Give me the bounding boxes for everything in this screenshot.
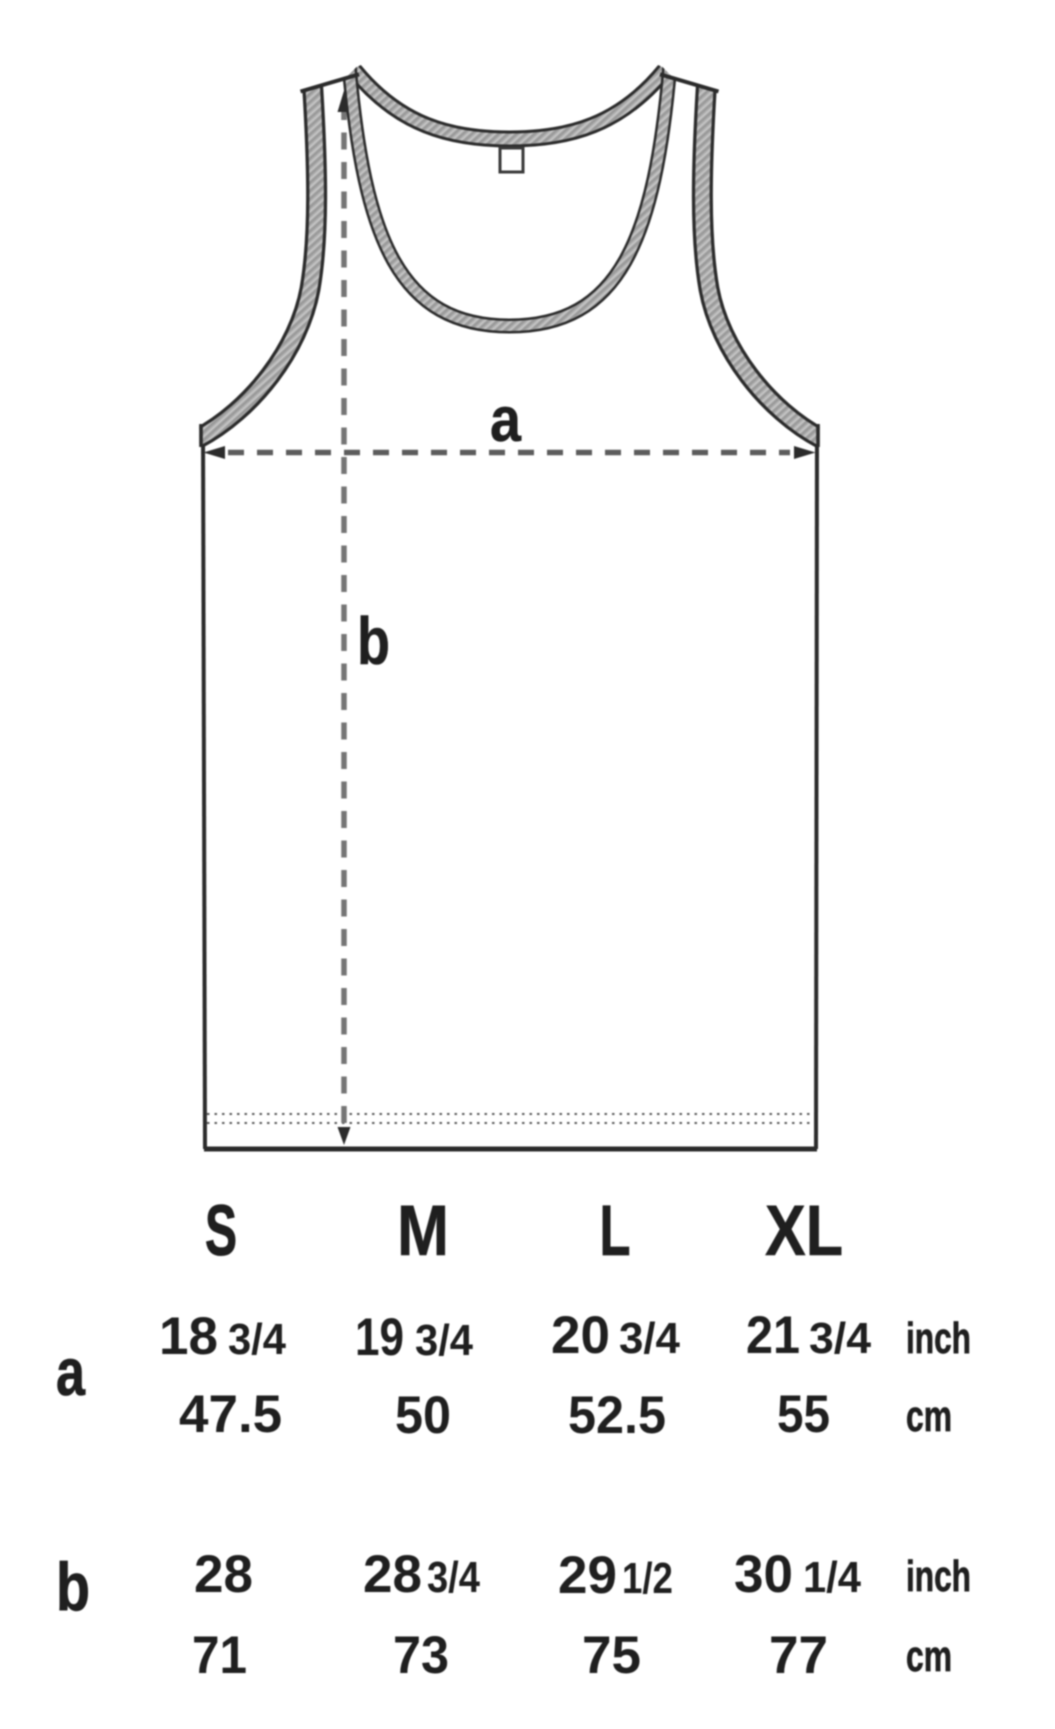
svg-text:S: S [205,1192,237,1271]
svg-text:73: 73 [393,1626,449,1685]
svg-text:28: 28 [194,1545,253,1604]
svg-text:a: a [56,1335,86,1410]
svg-text:50: 50 [395,1386,451,1445]
svg-text:b: b [357,604,390,679]
svg-text:b: b [56,1549,90,1625]
svg-text:213/4: 213/4 [746,1306,872,1365]
svg-text:193/4: 193/4 [355,1308,473,1367]
svg-text:inch: inch [906,1552,971,1601]
svg-text:cm: cm [906,1632,952,1681]
svg-text:inch: inch [906,1314,971,1363]
svg-text:XL: XL [765,1192,843,1271]
svg-text:cm: cm [906,1392,952,1441]
svg-text:291/2: 291/2 [558,1546,673,1605]
svg-text:71: 71 [192,1626,247,1685]
svg-text:52.5: 52.5 [568,1386,666,1445]
svg-text:77: 77 [769,1626,828,1685]
svg-text:47.5: 47.5 [179,1385,282,1444]
svg-text:283/4: 283/4 [363,1545,480,1604]
svg-text:M: M [397,1192,449,1271]
svg-text:75: 75 [582,1626,641,1685]
svg-text:55: 55 [777,1385,830,1444]
svg-text:a: a [490,385,522,455]
svg-text:L: L [600,1192,631,1271]
